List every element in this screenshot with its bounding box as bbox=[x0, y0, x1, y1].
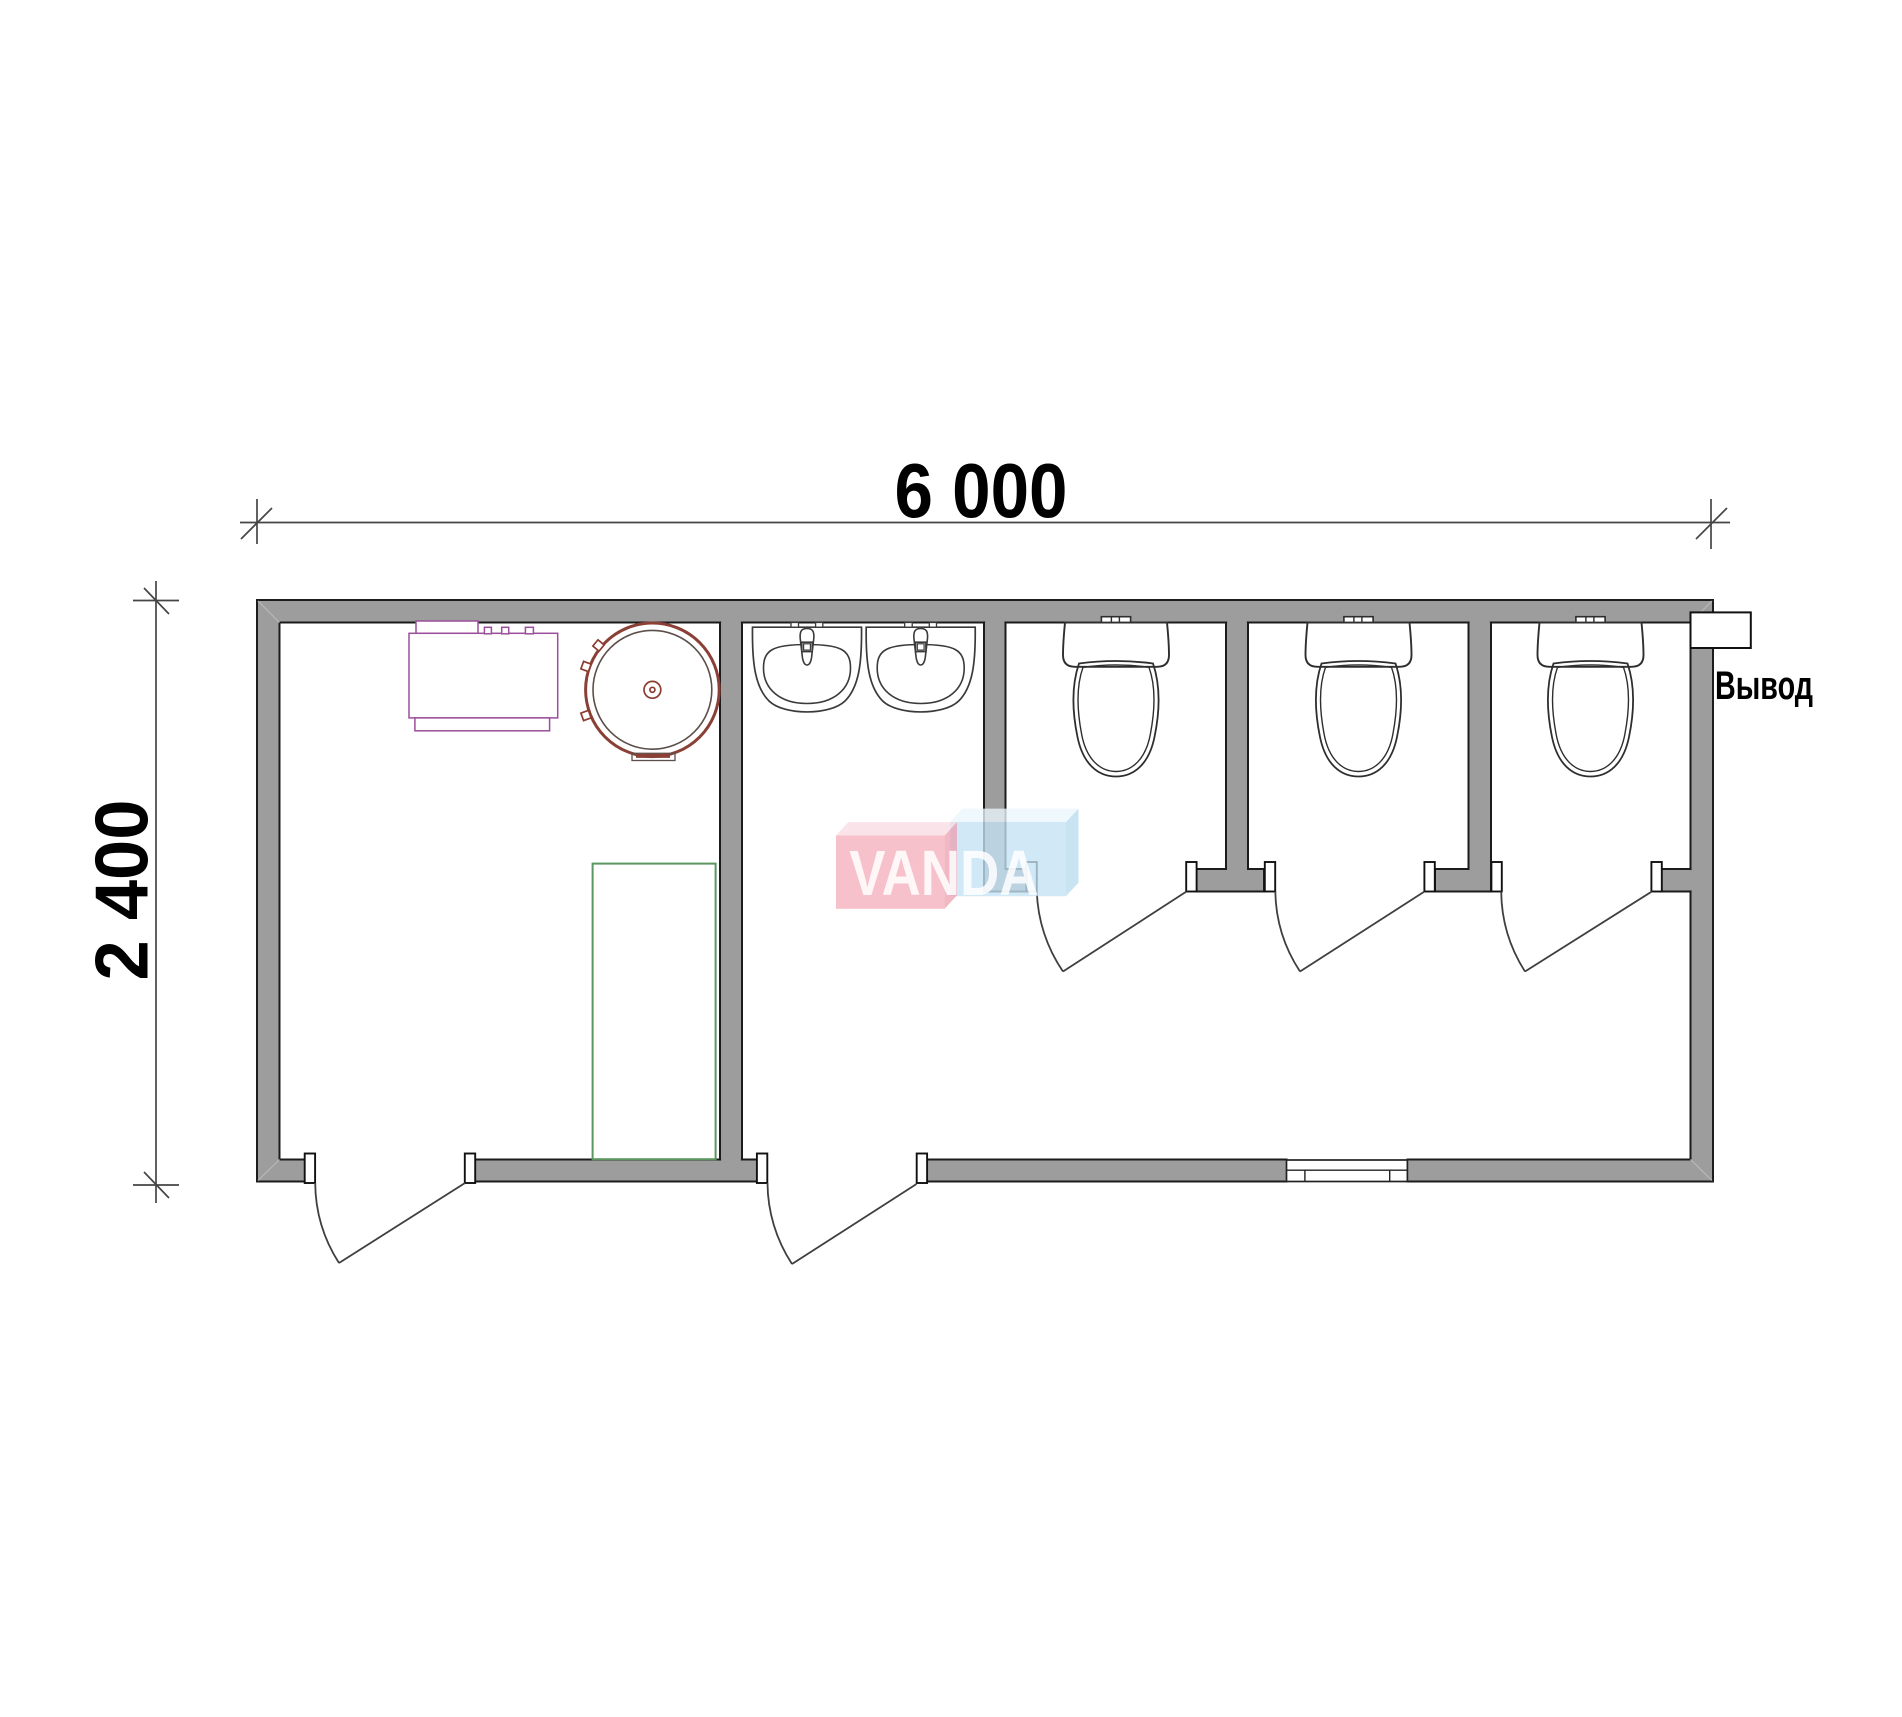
svg-text:Вывод: Вывод bbox=[1715, 664, 1813, 708]
svg-text:VANDA: VANDA bbox=[849, 837, 1038, 909]
svg-text:6 000: 6 000 bbox=[895, 449, 1068, 535]
svg-text:2 400: 2 400 bbox=[80, 800, 164, 981]
